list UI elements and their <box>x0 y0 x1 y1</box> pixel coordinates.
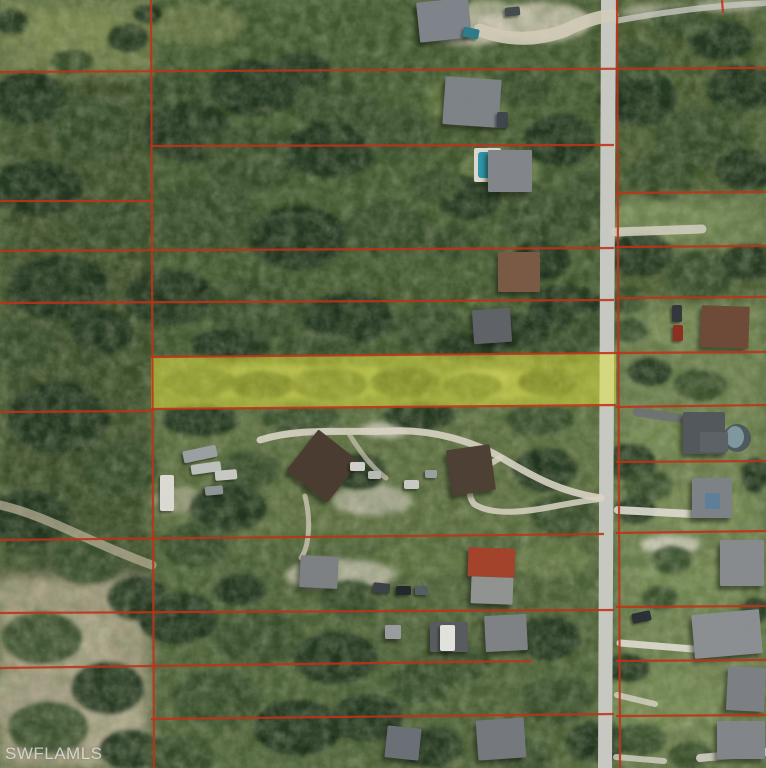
photo-grain <box>0 0 766 768</box>
aerial-map-photo: SWFLAMLS <box>0 0 766 768</box>
map-canvas <box>0 0 766 768</box>
